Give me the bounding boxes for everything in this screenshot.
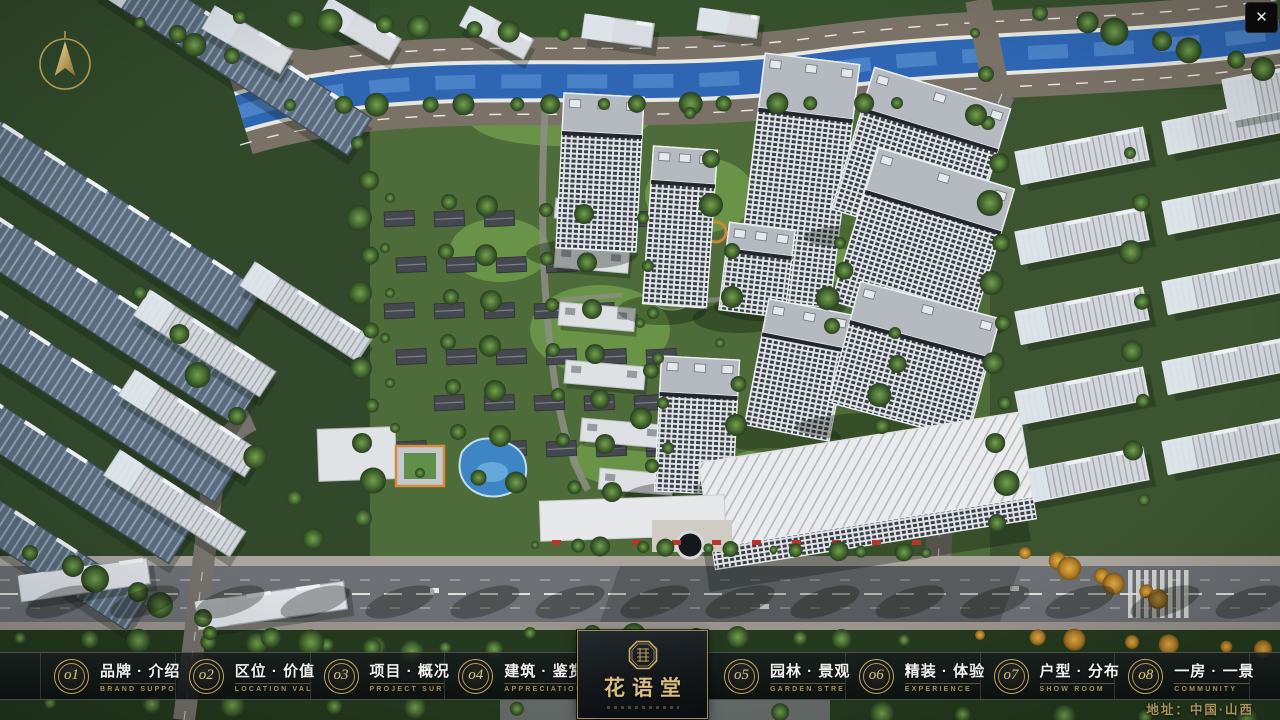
nav-label-cn: 建筑 · 鉴赏 [504, 660, 579, 681]
aerial-masterplan-render [0, 0, 1280, 720]
nav-item-location-value[interactable]: o2 区位 · 价值 LOCATION VALUE [176, 653, 311, 699]
nav-badge-03: o3 [324, 659, 359, 694]
nav-label-en: APPRECIATION [504, 683, 579, 693]
nav-item-floorplan-distribution[interactable]: o7 户型 · 分布 SHOW ROOM [981, 653, 1116, 699]
nav-label-cn: 园林 · 景观 [770, 660, 845, 681]
nav-label-cn: 一房 · 一景 [1174, 660, 1249, 681]
navbar-spacer [1250, 653, 1280, 699]
nav-label-en: PROJECT SURVEY [370, 683, 445, 693]
compass-icon [32, 28, 98, 94]
nav-item-project-survey[interactable]: o3 项目 · 概况 PROJECT SURVEY [311, 653, 446, 699]
nav-label-en: COMMUNITY [1174, 683, 1249, 693]
nav-item-interior-experience[interactable]: o6 精装 · 体验 EXPERIENCE [846, 653, 981, 699]
nav-item-architecture[interactable]: o4 建筑 · 鉴赏 APPRECIATION [445, 653, 580, 699]
nav-label-cn: 户型 · 分布 [1040, 660, 1115, 681]
nav-label-en: LOCATION VALUE [235, 683, 310, 693]
nav-badge-06: o6 [859, 659, 894, 694]
shadows-vignette-layer [0, 0, 1280, 720]
nav-label-cn: 品牌 · 介绍 [100, 660, 175, 681]
brand-subtitle-marks [607, 706, 679, 709]
nav-label-en: EXPERIENCE [905, 683, 980, 693]
nav-label-en: BRAND SUPPORT [100, 683, 175, 693]
nav-label-cn: 项目 · 概况 [370, 660, 445, 681]
nav-item-room-view[interactable]: o8 一房 · 一景 COMMUNITY [1115, 653, 1250, 699]
nav-label-cn: 精装 · 体验 [905, 660, 980, 681]
close-icon: ✕ [1255, 10, 1268, 25]
brand-title: 花语堂 [597, 672, 688, 702]
nav-badge-02: o2 [189, 659, 224, 694]
nav-badge-08: o8 [1128, 659, 1163, 694]
nav-badge-04: o4 [458, 659, 493, 694]
navbar-spacer [0, 653, 41, 699]
brand-logo-panel[interactable]: 花语堂 [577, 630, 708, 719]
project-address: 地址：中国·山西 [1146, 699, 1254, 718]
nav-badge-05: o5 [724, 659, 759, 694]
nav-label-en: SHOW ROOM [1040, 683, 1115, 693]
nav-item-garden-landscape[interactable]: o5 园林 · 景观 GARDEN STREET [711, 653, 846, 699]
close-button[interactable]: ✕ [1245, 2, 1278, 33]
nav-item-brand-intro[interactable]: o1 品牌 · 介绍 BRAND SUPPORT [41, 653, 176, 699]
brand-seal-icon [628, 640, 658, 670]
nav-badge-07: o7 [994, 659, 1029, 694]
nav-badge-01: o1 [54, 659, 89, 694]
nav-label-cn: 区位 · 价值 [235, 660, 310, 681]
nav-label-en: GARDEN STREET [770, 683, 845, 693]
presentation-stage: ✕ o1 品牌 · 介绍 BRAND SUPPORT o2 区位 · 价值 LO… [0, 0, 1280, 720]
